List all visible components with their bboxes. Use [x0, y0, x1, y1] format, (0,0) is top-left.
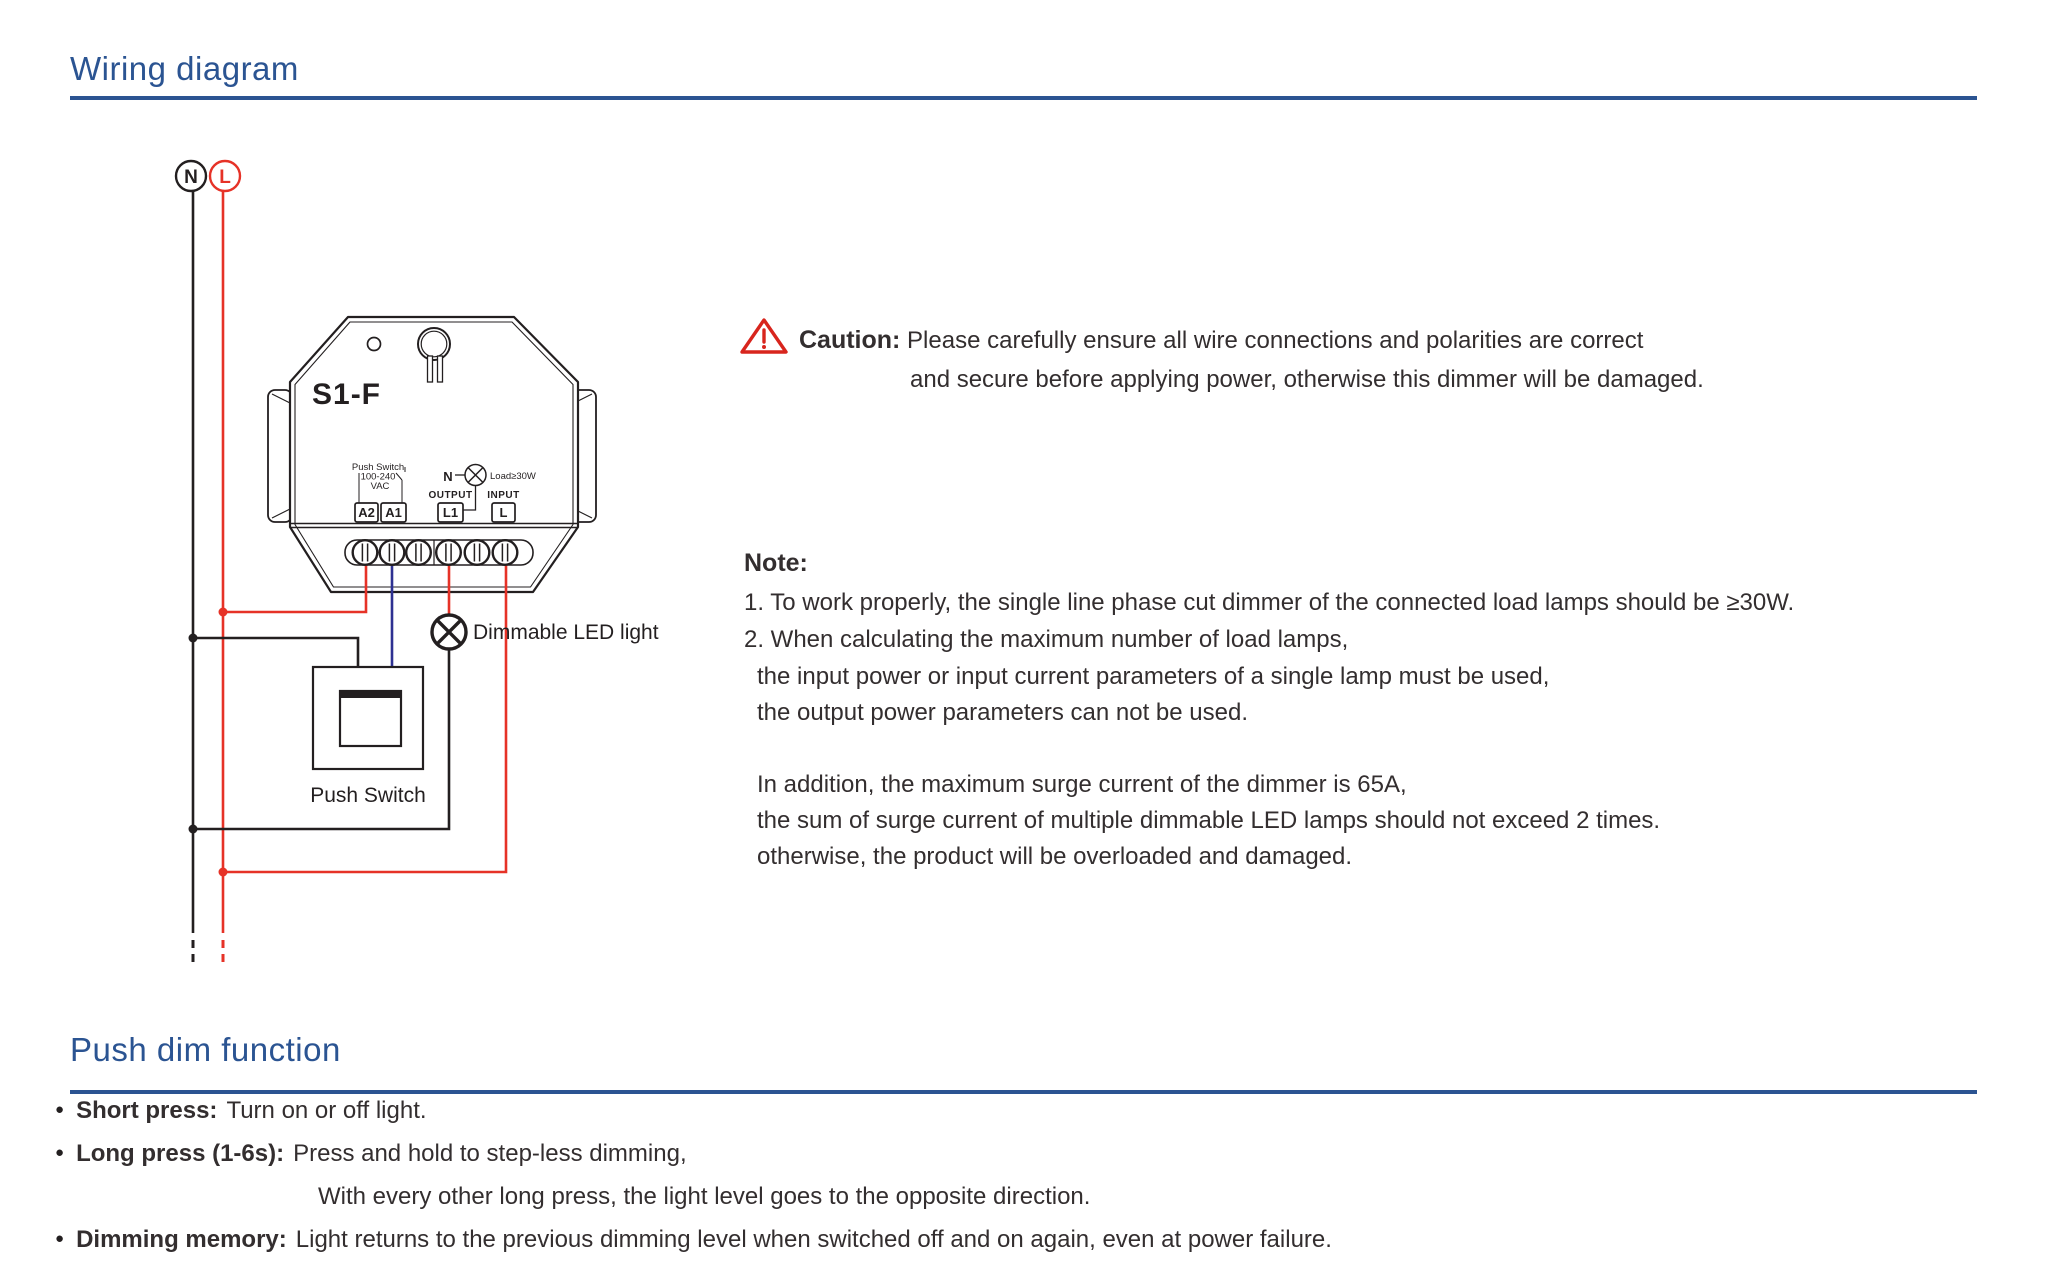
device-model: S1-F: [312, 378, 381, 411]
warning-icon: [738, 316, 790, 356]
screw-terminal: [465, 540, 490, 565]
terminal-l1: L1: [438, 503, 463, 522]
junction-dot: [219, 608, 228, 617]
bullet-long-press-continuation: With every other long press, the light l…: [318, 1183, 1090, 1211]
caution-line1: Caution: Please carefully ensure all wir…: [799, 326, 1643, 355]
wiring-diagram: N L: [0, 0, 810, 1000]
note-line: 1. To work properly, the single line pha…: [744, 589, 1794, 617]
title-rule-2: [70, 1090, 1977, 1094]
junction-dot: [219, 868, 228, 877]
screw-terminal: [406, 540, 431, 565]
live-label: L: [219, 167, 231, 188]
bullet-icon: ●: [55, 1230, 64, 1247]
note-line: the output power parameters can not be u…: [757, 699, 1248, 727]
bullet-icon: ●: [55, 1101, 64, 1118]
junction-dot: [189, 634, 198, 643]
rocker-bar: [340, 691, 401, 698]
led-light-label: Dimmable LED light: [473, 621, 659, 644]
note-line: the input power or input current paramet…: [757, 663, 1549, 691]
bullet-icon: ●: [55, 1144, 64, 1161]
manual-page: Wiring diagram N L: [0, 0, 2054, 1278]
note-line: otherwise, the product will be overloade…: [757, 843, 1352, 871]
push-dim-title: Push dim function: [70, 1031, 341, 1069]
dimmer-device: S1-F Push Switch 100-240 VAC N Load≥30W …: [268, 317, 596, 592]
push-switch: Push Switch: [310, 667, 426, 807]
neutral-label: N: [184, 167, 198, 188]
output-label: OUTPUT: [428, 490, 472, 501]
screw-terminal: [353, 540, 378, 565]
svg-text:A2: A2: [358, 505, 375, 520]
screw-terminal: [436, 540, 461, 565]
load-label: Load≥30W: [490, 471, 536, 482]
input-label: INPUT: [487, 490, 520, 501]
terminal-l: L: [492, 503, 515, 522]
push-switch-label: Push Switch: [310, 784, 426, 807]
svg-text:L: L: [500, 505, 508, 520]
dimmable-led-lamp: Dimmable LED light: [432, 615, 659, 649]
terminal-a1: A1: [381, 503, 406, 522]
vac-label: VAC: [371, 481, 390, 492]
terminal-a2: A2: [355, 503, 378, 522]
bullet-short-press: ●Short press:Turn on or off light.: [55, 1097, 427, 1125]
neutral-supply-terminal: N: [176, 161, 206, 191]
bullet-dimming-memory: ●Dimming memory:Light returns to the pre…: [55, 1226, 1332, 1254]
svg-text:A1: A1: [385, 505, 402, 520]
note-line: 2. When calculating the maximum number o…: [744, 626, 1348, 654]
wire-neutral-to-switch: [193, 638, 358, 670]
note-heading: Note:: [744, 549, 808, 578]
caution-label: Caution:: [799, 326, 900, 354]
live-supply-terminal: L: [210, 161, 240, 191]
mounting-tab-left: [268, 390, 292, 522]
bullet-long-press: ●Long press (1-6s):Press and hold to ste…: [55, 1140, 687, 1168]
screw-terminal: [493, 540, 518, 565]
n-annotation-label: N: [443, 469, 452, 484]
note-line: the sum of surge current of multiple dim…: [757, 807, 1660, 835]
screw-terminal: [380, 540, 405, 565]
junction-dot: [189, 825, 198, 834]
note-line: In addition, the maximum surge current o…: [757, 771, 1407, 799]
svg-text:L1: L1: [443, 505, 458, 520]
caution-line2: and secure before applying power, otherw…: [910, 366, 1704, 394]
